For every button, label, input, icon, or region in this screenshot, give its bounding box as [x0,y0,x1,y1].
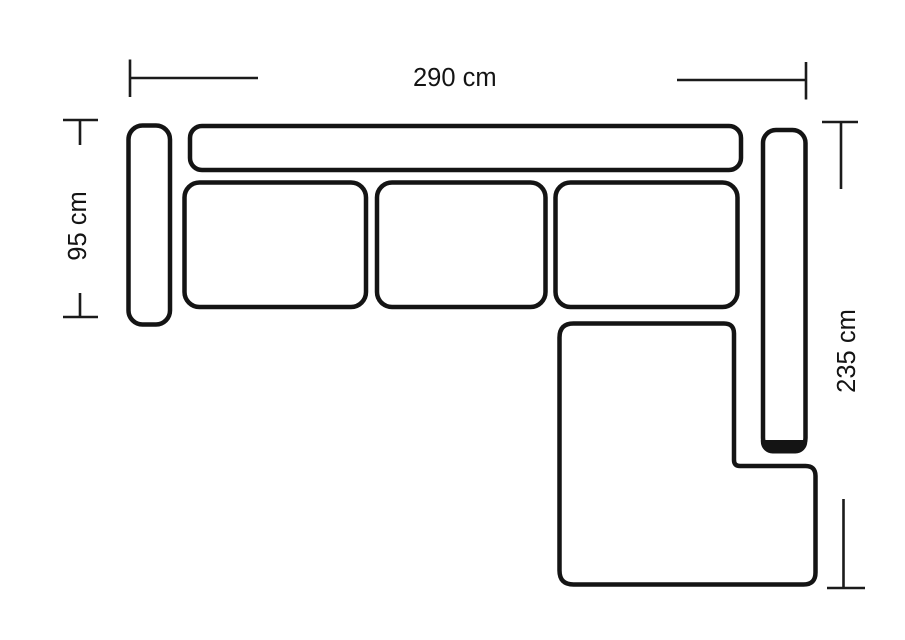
svg-text:290 cm: 290 cm [413,64,497,92]
svg-text:95 cm: 95 cm [64,191,92,260]
svg-text:235 cm: 235 cm [833,309,861,393]
